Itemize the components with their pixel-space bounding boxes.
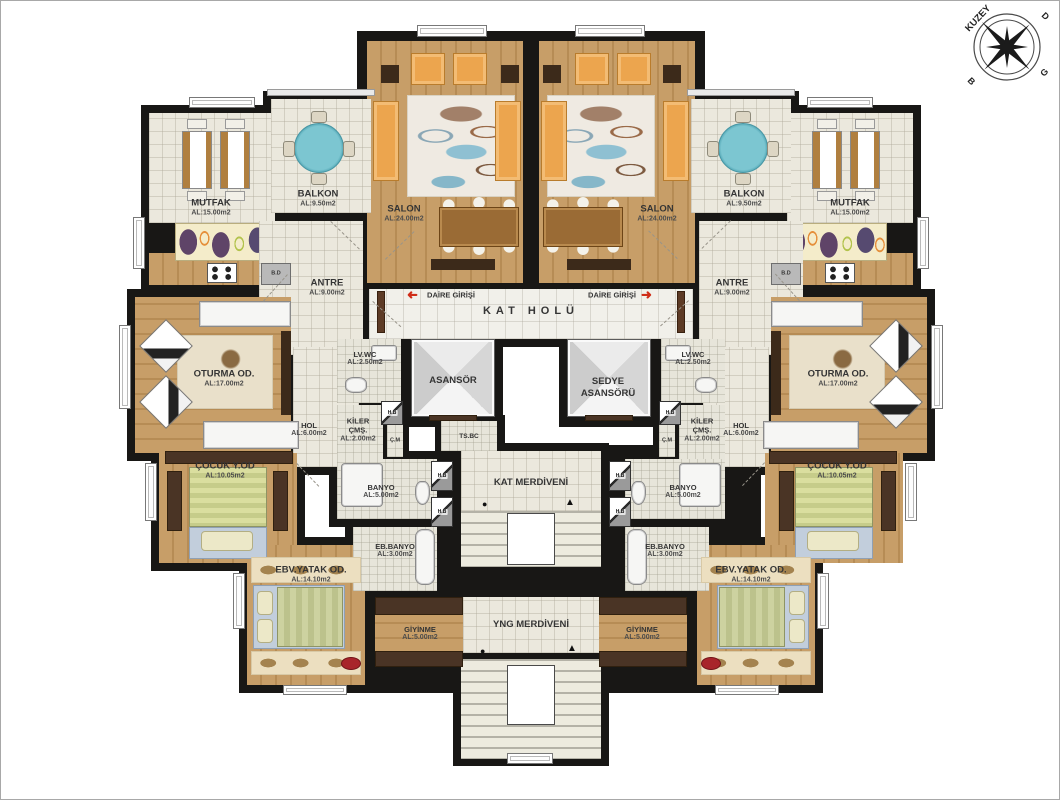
window	[119, 325, 131, 409]
room-name: HOL	[733, 421, 749, 430]
mutfak-left-table	[182, 131, 212, 189]
room-label-cm-right: Ç.M	[662, 438, 672, 445]
salon-right-sofa	[541, 101, 567, 181]
room-label-tsbc: TS.BC	[459, 433, 479, 441]
stair-name: YNG MERDİVENİ	[493, 619, 569, 630]
room-label-balkon-left: BALKONAL:9.50m2	[298, 189, 339, 210]
room-name: EB.BANYO	[375, 542, 415, 551]
room-name: EBV.YATAK OD.	[715, 565, 786, 576]
cocuk-left-nightstand	[273, 471, 288, 531]
salon-left-tv-unit	[431, 259, 495, 270]
room-label-asansor: ASANSÖR	[429, 375, 477, 387]
compass-east-label: D	[1040, 10, 1052, 22]
room-area: AL:5.00m2	[665, 492, 700, 501]
room-name: LV.WC	[354, 350, 377, 359]
cocuk-left-pillow	[201, 531, 253, 551]
stair-direction-arrow: ▲	[565, 497, 575, 508]
window	[817, 573, 829, 629]
ebv-right-pillow	[789, 591, 805, 615]
room-label-balkon-right: BALKONAL:9.50m2	[724, 189, 765, 210]
room-name: ÇMŞ.	[684, 426, 719, 435]
room-name: BANYO	[367, 483, 394, 492]
room-area: AL:6.00m2	[723, 430, 758, 439]
label-kat-holu: KAT HOLÜ	[483, 305, 579, 319]
room-name: Ç.M	[662, 438, 672, 444]
room-name: OTURMA OD.	[194, 369, 255, 380]
balkon-right-chair	[735, 173, 751, 185]
salon-left-armchair	[453, 53, 487, 85]
oturma-right-sofa	[771, 301, 863, 327]
room-name: ÇMŞ.	[340, 426, 375, 435]
salon-left-armchair	[411, 53, 445, 85]
salon-right-armchair	[575, 53, 609, 85]
room-name: ASANSÖRÜ	[581, 388, 635, 400]
room-label-giyinme-left: GİYİNMEAL:5.00m2	[402, 625, 437, 643]
room-name: MUTFAK	[191, 198, 231, 209]
giyinme-right-wardrobe	[599, 651, 687, 667]
label-bd-left: B.D	[271, 271, 280, 278]
room-name: EB.BANYO	[645, 542, 685, 551]
room-label-oturma-left: OTURMA OD.AL:17.00m2	[194, 369, 255, 390]
ebv-right-pouf	[701, 657, 721, 670]
cocuk-right-pillow	[807, 531, 859, 551]
room-label-hol-left: HOLAL:6.00m2	[291, 421, 326, 439]
balkon-left-chair	[343, 141, 355, 157]
box-name: B.D	[781, 271, 790, 277]
compass-west-label: B	[966, 75, 978, 87]
window	[189, 97, 255, 108]
room-area: AL:10.05m2	[807, 473, 866, 482]
corridor-name: KAT HOLÜ	[483, 305, 579, 317]
room-area: AL:9.50m2	[298, 201, 339, 210]
balkon-right-chair	[735, 111, 751, 123]
unit-right-entry-door	[677, 291, 685, 333]
room-name: Ç.M	[390, 438, 400, 444]
window	[931, 325, 943, 409]
cocuk-right-nightstand	[881, 471, 896, 531]
room-area: AL:6.00m2	[291, 430, 326, 439]
room-label-cocuk-right: ÇOCUK Y.ODAL:10.05m2	[807, 461, 866, 482]
room-label-salon-right: SALONAL:24.00m2	[637, 204, 676, 225]
mutfak-right-table	[850, 131, 880, 189]
room-label-oturma-right: OTURMA OD.AL:17.00m2	[808, 369, 869, 390]
salon-left-sofa	[495, 101, 521, 181]
room-label-ebv-right: EBV.YATAK OD.AL:14.10m2	[715, 565, 786, 586]
mutfak-right-chair	[817, 119, 837, 129]
balkon-left-chair	[311, 173, 327, 185]
salon-right-tv-unit	[567, 259, 631, 270]
room-name: OTURMA OD.	[808, 369, 869, 380]
shaft-name: H.B	[388, 410, 397, 416]
window	[715, 685, 779, 695]
oturma-left-tv-unit	[281, 331, 291, 415]
label-daire-girisi-left: DAİRE GİRİŞİ	[427, 290, 475, 299]
mutfak-right-table	[812, 131, 842, 189]
room-name: GİYİNME	[626, 625, 658, 634]
label-hb: H.B	[665, 410, 676, 416]
room-name: MUTFAK	[830, 198, 870, 209]
room-area: AL:2.50m2	[675, 359, 710, 368]
room-area: AL:5.00m2	[402, 634, 437, 643]
window	[145, 463, 157, 521]
oturma-left-sofa	[199, 301, 291, 327]
window	[133, 217, 145, 269]
kat-merdiveni-core	[507, 513, 555, 565]
shaft-name: H.B	[616, 509, 625, 515]
balkon-left-railing	[267, 89, 375, 96]
stove-right	[825, 263, 855, 283]
room-label-kiler-right: KİLERÇMŞ.AL:2.00m2	[684, 416, 719, 444]
giyinme-left-wardrobe	[375, 597, 463, 615]
salon-right-dining-table	[543, 207, 623, 247]
oturma-right-tv-unit	[771, 331, 781, 415]
room-name: TS.BC	[459, 433, 479, 440]
cocuk-left-nightstand	[167, 471, 182, 531]
room-name: ANTRE	[716, 278, 749, 289]
room-label-cm-left: Ç.M	[390, 438, 400, 445]
room-name: SALON	[387, 204, 420, 215]
room-name: BANYO	[669, 483, 696, 492]
window	[905, 463, 917, 521]
banyo-left-wc	[415, 481, 430, 505]
yng-merdiveni-core	[507, 665, 555, 725]
room-label-cocuk-left: ÇOCUK Y.ODAL:10.05m2	[195, 461, 254, 482]
label-daire-girisi-right: DAİRE GİRİŞİ	[588, 290, 636, 299]
balkon-right-railing	[687, 89, 795, 96]
stair-start-dot: ●	[482, 499, 487, 509]
stair-direction-arrow: ▲	[567, 643, 577, 654]
label-hb: H.B	[615, 509, 626, 515]
room-area: AL:2.50m2	[347, 359, 382, 368]
room-name: SALON	[640, 204, 673, 215]
compass-south-label: G	[1038, 66, 1050, 78]
window	[417, 25, 487, 37]
giyinme-left-wardrobe	[375, 651, 463, 667]
room-area: AL:17.00m2	[808, 381, 869, 390]
salon-right-side-table	[663, 65, 681, 83]
ebv-left-pillow	[257, 619, 273, 643]
room-label-antre-left: ANTREAL:9.00m2	[309, 278, 344, 299]
entry-label: DAİRE GİRİŞİ	[588, 290, 636, 299]
window	[283, 685, 347, 695]
salon-left-side-table	[501, 65, 519, 83]
room-area: AL:5.00m2	[624, 634, 659, 643]
room-label-banyo-right: BANYOAL:5.00m2	[665, 483, 700, 501]
label-kat-merdiveni: KAT MERDİVENİ	[494, 477, 568, 489]
lvwc-left-wc	[345, 377, 367, 393]
balkon-left-chair	[283, 141, 295, 157]
room-area: AL:3.00m2	[375, 551, 415, 560]
salon-right-armchair	[617, 53, 651, 85]
room-label-lvwc-left: LV.WCAL:2.50m2	[347, 350, 382, 368]
room-label-lvwc-right: LV.WCAL:2.50m2	[675, 350, 710, 368]
entry-arrow-left-icon: ➜	[407, 288, 418, 301]
balkon-right-chair	[767, 141, 779, 157]
mutfak-right-chair	[855, 119, 875, 129]
oturma-right-sofa	[763, 421, 859, 449]
shaft-name: H.B	[616, 473, 625, 479]
balkon-right-chair	[707, 141, 719, 157]
room-name: BALKON	[724, 189, 765, 200]
window	[575, 25, 645, 37]
balkon-right-table	[718, 123, 768, 173]
room-area: AL:2.00m2	[340, 435, 375, 444]
room-label-ebbanyo-right: EB.BANYOAL:3.00m2	[645, 542, 685, 560]
window	[807, 97, 873, 108]
room-name: ASANSÖR	[429, 375, 477, 386]
label-bd-right: B.D	[781, 271, 790, 278]
balkon-left-table	[294, 123, 344, 173]
room-name: ANTRE	[311, 278, 344, 289]
room-label-mutfak-right: MUTFAKAL:15.00m2	[830, 198, 870, 219]
oturma-left-sofa	[203, 421, 299, 449]
room-area: AL:15.00m2	[191, 210, 231, 219]
room-area: AL:14.10m2	[275, 577, 346, 586]
room-label-ebv-left: EBV.YATAK OD.AL:14.10m2	[275, 565, 346, 586]
room-label-antre-right: ANTREAL:9.00m2	[714, 278, 749, 299]
ebv-left-pillow	[257, 591, 273, 615]
room-name: ÇOCUK Y.OD	[195, 461, 254, 472]
room-name: GİYİNME	[404, 625, 436, 634]
room-label-banyo-left: BANYOAL:5.00m2	[363, 483, 398, 501]
salon-right-sofa	[663, 101, 689, 181]
room-label-giyinme-right: GİYİNMEAL:5.00m2	[624, 625, 659, 643]
label-hb: H.B	[437, 473, 448, 479]
room-name: HOL	[301, 421, 317, 430]
label-hb: H.B	[437, 509, 448, 515]
room-area: AL:14.10m2	[715, 577, 786, 586]
lvwc-right-wc	[695, 377, 717, 393]
room-name: EBV.YATAK OD.	[275, 565, 346, 576]
room-label-ebbanyo-left: EB.BANYOAL:3.00m2	[375, 542, 415, 560]
stair-start-dot: ●	[480, 646, 485, 656]
room-area: AL:9.00m2	[309, 290, 344, 299]
room-name: ÇOCUK Y.OD	[807, 461, 866, 472]
room-area: AL:9.50m2	[724, 201, 765, 210]
salon-left-side-table	[381, 65, 399, 83]
ebv-right-pillow	[789, 619, 805, 643]
cocuk-right-nightstand	[779, 471, 794, 531]
room-area: AL:10.05m2	[195, 473, 254, 482]
mutfak-left-chair	[187, 119, 207, 129]
shaft-name: H.B	[666, 410, 675, 416]
ebbanyo-right-tub	[627, 529, 647, 585]
ebv-right-blanket	[719, 587, 785, 647]
label-hb: H.B	[387, 410, 398, 416]
window	[917, 217, 929, 269]
label-yng-merdiveni: YNG MERDİVENİ	[493, 619, 569, 631]
ebv-left-pouf	[341, 657, 361, 670]
room-name: KİLER	[691, 416, 714, 425]
ebbanyo-left-tub	[415, 529, 435, 585]
room-label-sedye-asansoru: SEDYEASANSÖRÜ	[581, 376, 635, 400]
balkon-left-chair	[311, 111, 327, 123]
entry-label: DAİRE GİRİŞİ	[427, 290, 475, 299]
room-area: AL:5.00m2	[363, 492, 398, 501]
shaft-name: H.B	[438, 473, 447, 479]
room-name: BALKON	[298, 189, 339, 200]
box-name: B.D	[271, 271, 280, 277]
room-label-salon-left: SALONAL:24.00m2	[384, 204, 423, 225]
stove-left	[207, 263, 237, 283]
salon-left-sofa	[373, 101, 399, 181]
banyo-right-wc	[631, 481, 646, 505]
room-label-mutfak-left: MUTFAKAL:15.00m2	[191, 198, 231, 219]
room-name: KİLER	[347, 416, 370, 425]
ebv-left-blanket	[277, 587, 343, 647]
shaft-name: H.B	[438, 509, 447, 515]
stair-name: KAT MERDİVENİ	[494, 477, 568, 488]
room-label-hol-right: HOLAL:6.00m2	[723, 421, 758, 439]
salon-left-dining-table	[439, 207, 519, 247]
room-name: LV.WC	[682, 350, 705, 359]
giyinme-right-wardrobe	[599, 597, 687, 615]
salon-right-side-table	[543, 65, 561, 83]
entrance-door	[507, 753, 553, 764]
room-area: AL:3.00m2	[645, 551, 685, 560]
room-label-kiler-left: KİLERÇMŞ.AL:2.00m2	[340, 416, 375, 444]
room-area: AL:24.00m2	[384, 216, 423, 225]
room-name: SEDYE	[592, 376, 624, 387]
room-area: AL:15.00m2	[830, 210, 870, 219]
mutfak-left-chair	[225, 119, 245, 129]
label-hb: H.B	[615, 473, 626, 479]
room-area: AL:9.00m2	[714, 290, 749, 299]
floor-plan-canvas: ● ▲ ● ▲ ➜ ➜ MUTFAKAL:15.00m2 MUTFAKAL:15…	[0, 0, 1060, 800]
compass-rose: KUZEY D G B	[945, 1, 1060, 101]
entry-arrow-right-icon: ➜	[641, 288, 652, 301]
room-area: AL:24.00m2	[637, 216, 676, 225]
elevator-stretcher-door	[585, 415, 633, 421]
room-area: AL:2.00m2	[684, 435, 719, 444]
window	[233, 573, 245, 629]
room-area: AL:17.00m2	[194, 381, 255, 390]
mutfak-left-table	[220, 131, 250, 189]
